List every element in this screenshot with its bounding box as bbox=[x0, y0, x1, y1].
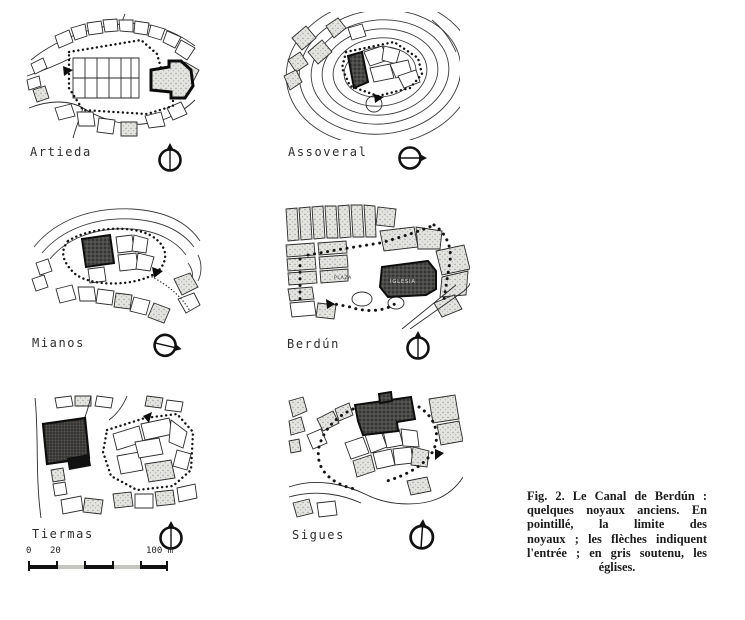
scale-label-100m: 100 m bbox=[146, 546, 173, 556]
scale-bar: 0 20 100 m bbox=[28, 546, 178, 574]
scale-bar-labels: 0 20 100 m bbox=[28, 546, 178, 558]
artieda-label: Artieda bbox=[30, 145, 92, 159]
mianos-church bbox=[82, 235, 114, 267]
caption-line: noyaux ; les flèches indiquent bbox=[527, 532, 707, 546]
artieda-church bbox=[151, 61, 193, 98]
caption-line: pointillé, la limite des bbox=[527, 517, 707, 531]
caption-line: Fig. 2. Le Canal de Berdún : bbox=[527, 489, 707, 503]
tiermas-label: Tiermas bbox=[32, 527, 94, 541]
tiermas-map bbox=[27, 394, 201, 520]
mianos-entrance-arrow bbox=[152, 267, 163, 278]
mianos-buildings bbox=[32, 235, 200, 323]
mianos-map bbox=[28, 203, 206, 329]
berdun-plaza-label: PLAZA bbox=[334, 275, 352, 281]
scale-label-20: 20 bbox=[50, 546, 61, 556]
caption-line: l'entrée ; en gris soutenu, les bbox=[527, 546, 707, 560]
berdun-north-arrow-icon bbox=[404, 329, 432, 361]
berdun-label: Berdún bbox=[287, 337, 340, 351]
assoveral-map bbox=[282, 12, 460, 140]
sigues-map bbox=[287, 391, 463, 519]
berdun-buildings bbox=[286, 205, 470, 329]
sigues-church-tower bbox=[379, 392, 392, 403]
scale-bar-line bbox=[28, 561, 178, 571]
artieda-north-arrow-icon bbox=[156, 141, 184, 173]
scale-label-0: 0 bbox=[26, 546, 31, 556]
sigues-north-arrow-icon bbox=[406, 516, 438, 552]
artieda-map bbox=[25, 12, 201, 140]
berdun-iglesia-label: IGLESIA bbox=[390, 279, 416, 285]
tiermas-entrance-arrow bbox=[143, 412, 152, 423]
sigues-label: Sigues bbox=[292, 528, 345, 542]
caption-line-last: églises. bbox=[527, 560, 707, 574]
assoveral-church bbox=[348, 52, 368, 88]
figure-caption: Fig. 2. Le Canal de Berdún : quelques no… bbox=[527, 489, 707, 574]
assoveral-label: Assoveral bbox=[288, 145, 367, 159]
mianos-north-arrow-icon bbox=[149, 329, 186, 363]
caption-line: quelques noyaux anciens. En bbox=[527, 503, 707, 517]
mianos-label: Mianos bbox=[32, 336, 85, 350]
sigues-entrance-arrow bbox=[435, 449, 444, 460]
berdun-map: PLAZA IGLESIA bbox=[284, 203, 470, 329]
assoveral-north-arrow-icon bbox=[397, 144, 429, 172]
